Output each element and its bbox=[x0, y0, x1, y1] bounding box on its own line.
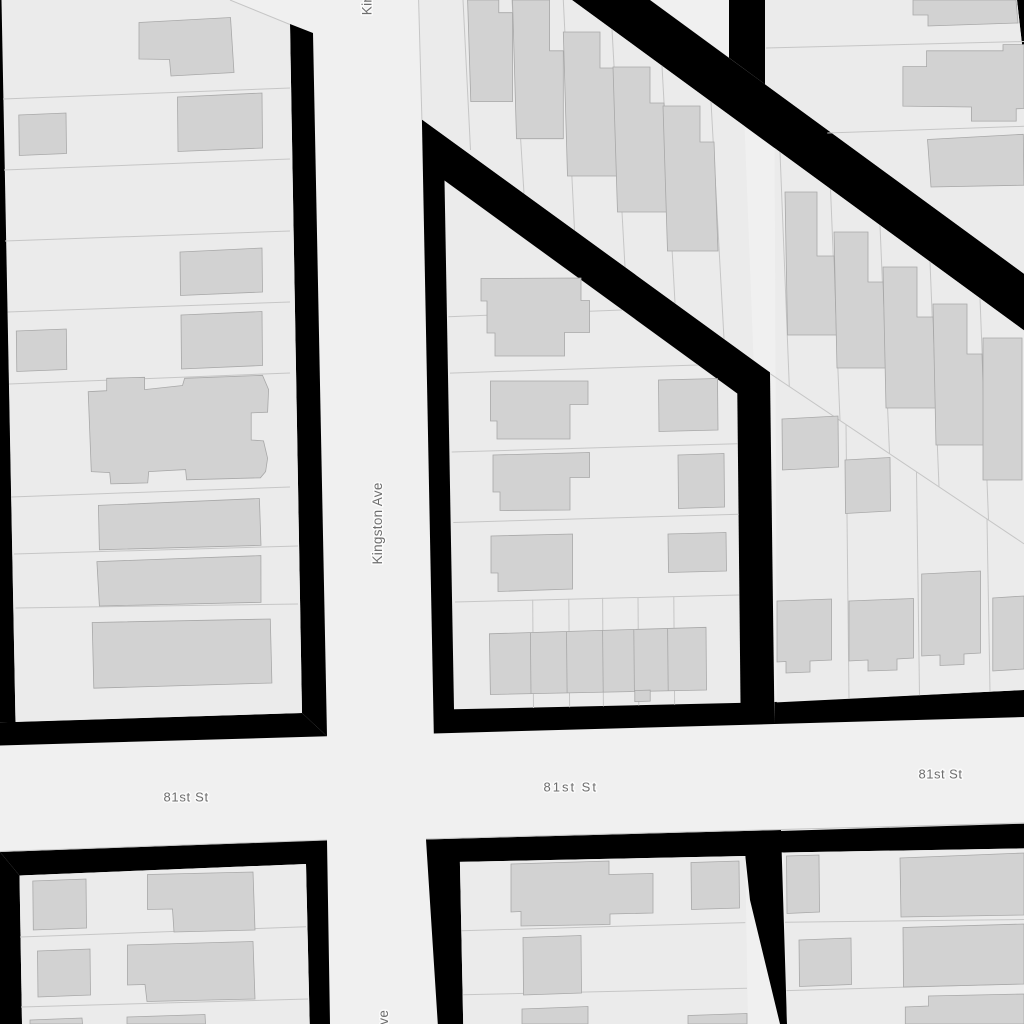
svg-text:Kingston Ave: Kingston Ave bbox=[370, 482, 385, 564]
svg-text:Kingston Ave: Kingston Ave bbox=[376, 1010, 391, 1024]
svg-text:81st St: 81st St bbox=[544, 780, 598, 795]
svg-text:81st St: 81st St bbox=[164, 790, 209, 805]
svg-text:81st St: 81st St bbox=[919, 767, 963, 782]
svg-text:Kingston Ave: Kingston Ave bbox=[360, 0, 375, 15]
